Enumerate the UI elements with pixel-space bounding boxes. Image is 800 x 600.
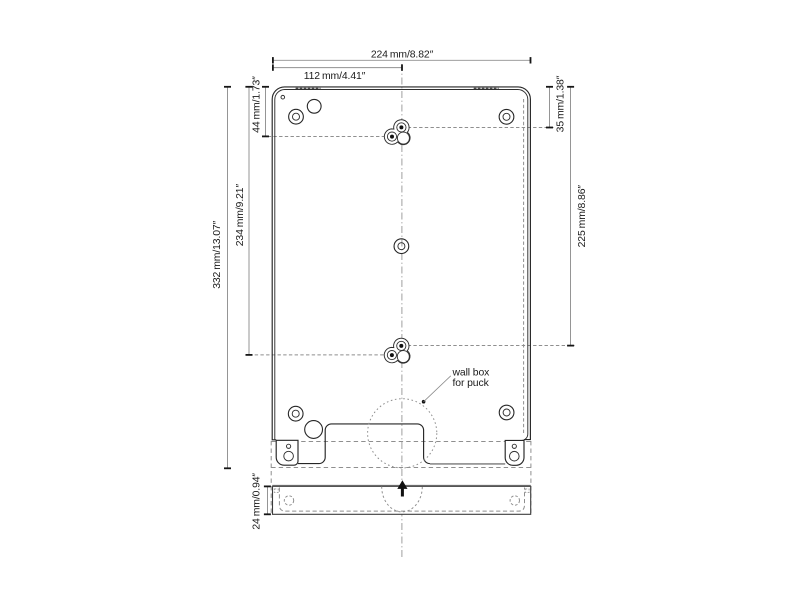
svg-text:225 mm/8.86″: 225 mm/8.86″ [577, 185, 588, 248]
svg-text:332 mm/13.07″: 332 mm/13.07″ [212, 220, 223, 288]
svg-text:35 mm/1.38″: 35 mm/1.38″ [555, 75, 566, 132]
svg-text:44 mm/1.73″: 44 mm/1.73″ [251, 76, 262, 133]
svg-text:wall box: wall box [452, 367, 491, 378]
svg-text:234 mm/9.21″: 234 mm/9.21″ [235, 184, 246, 247]
svg-text:for puck: for puck [453, 378, 490, 389]
svg-text:112 mm/4.41″: 112 mm/4.41″ [304, 71, 366, 82]
svg-text:24 mm/0.94″: 24 mm/0.94″ [252, 473, 263, 530]
svg-text:224 mm/8.82″: 224 mm/8.82″ [371, 50, 434, 61]
